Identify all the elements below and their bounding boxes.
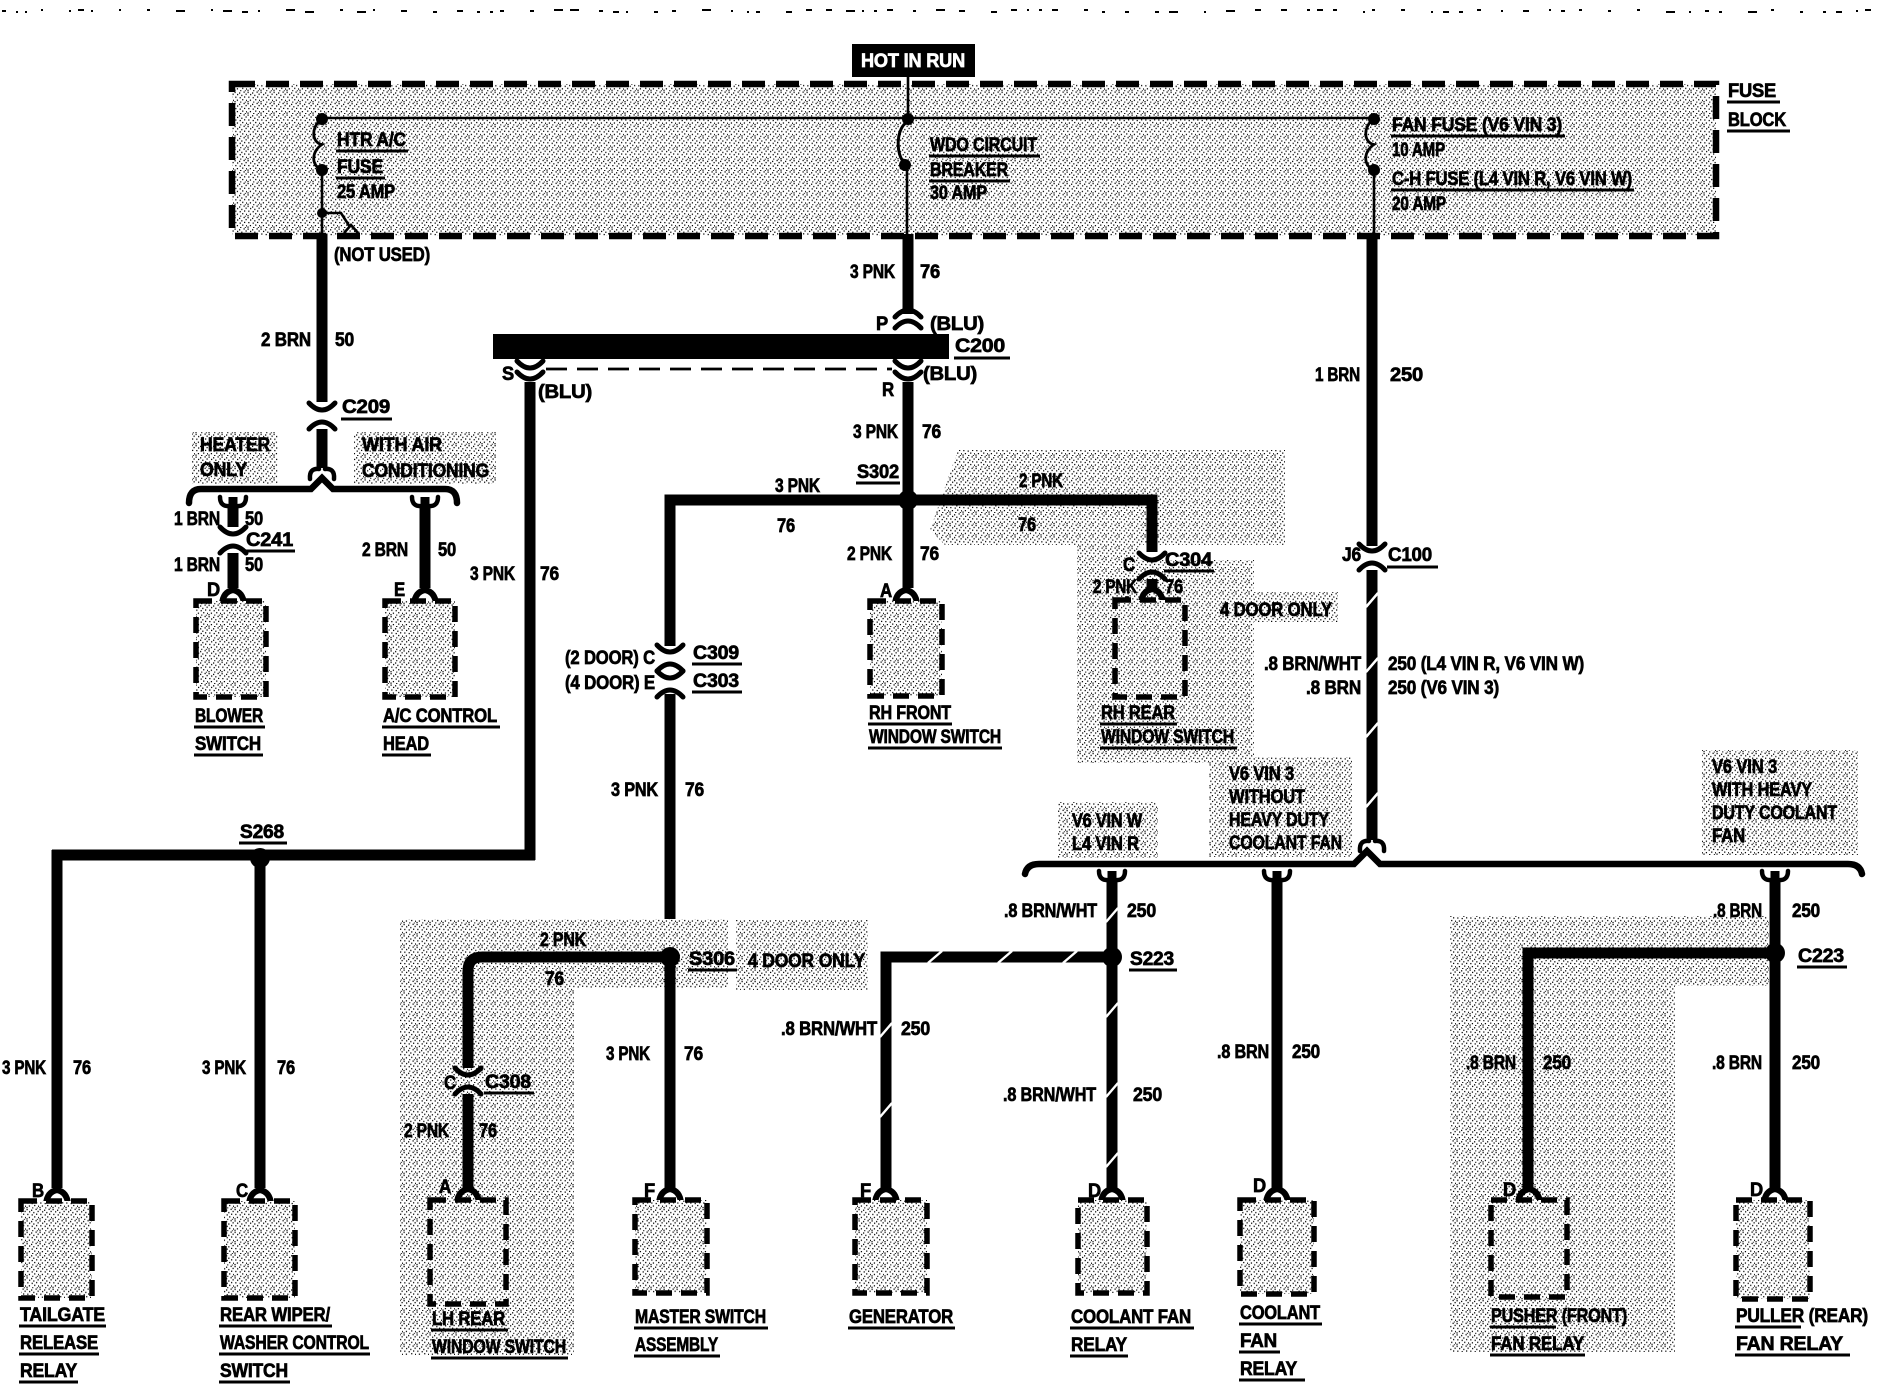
- svg-text:2 BRN: 2 BRN: [362, 540, 408, 561]
- svg-text:LH REAR: LH REAR: [432, 1309, 505, 1330]
- svg-text:PULLER (REAR): PULLER (REAR): [1736, 1306, 1868, 1327]
- svg-text:50: 50: [335, 330, 354, 351]
- svg-text:V6 VIN 3: V6 VIN 3: [1712, 757, 1777, 778]
- svg-text:D: D: [1253, 1176, 1266, 1197]
- svg-text:76: 76: [920, 544, 939, 565]
- svg-text:250: 250: [1292, 1042, 1320, 1063]
- svg-text:.8 BRN/WHT: .8 BRN/WHT: [1003, 1085, 1097, 1106]
- svg-text:C209: C209: [342, 397, 390, 418]
- svg-text:3 PNK: 3 PNK: [853, 422, 898, 443]
- svg-text:.8 BRN/WHT: .8 BRN/WHT: [781, 1019, 878, 1040]
- svg-text:3 PNK: 3 PNK: [775, 476, 820, 497]
- svg-text:(BLU): (BLU): [930, 314, 984, 335]
- svg-text:76: 76: [1165, 577, 1183, 598]
- svg-text:.8 BRN: .8 BRN: [1217, 1042, 1269, 1063]
- svg-text:RH FRONT: RH FRONT: [869, 703, 951, 724]
- svg-text:HOT IN RUN: HOT IN RUN: [861, 51, 965, 72]
- svg-text:S302: S302: [857, 462, 899, 483]
- svg-text:25 AMP: 25 AMP: [337, 182, 395, 203]
- svg-text:30 AMP: 30 AMP: [930, 183, 987, 204]
- svg-text:(NOT USED): (NOT USED): [334, 245, 430, 266]
- svg-text:WASHER CONTROL: WASHER CONTROL: [220, 1333, 369, 1354]
- svg-text:3 PNK: 3 PNK: [611, 780, 658, 801]
- svg-text:J6: J6: [1342, 545, 1361, 566]
- svg-text:3 PNK: 3 PNK: [850, 262, 895, 283]
- svg-text:BREAKER: BREAKER: [930, 160, 1008, 181]
- svg-text:(BLU): (BLU): [538, 382, 592, 403]
- svg-text:.8 BRN/WHT: .8 BRN/WHT: [1004, 901, 1098, 922]
- svg-text:WINDOW SWITCH: WINDOW SWITCH: [869, 727, 1001, 748]
- svg-text:2 PNK: 2 PNK: [1019, 471, 1063, 492]
- svg-text:CONDITIONING: CONDITIONING: [362, 461, 489, 482]
- svg-text:ONLY: ONLY: [200, 460, 247, 481]
- svg-text:2 PNK: 2 PNK: [540, 930, 586, 951]
- svg-text:76: 76: [777, 516, 795, 537]
- svg-text:.8 BRN: .8 BRN: [1466, 1053, 1516, 1074]
- svg-text:E: E: [394, 580, 405, 601]
- svg-text:FAN: FAN: [1712, 826, 1745, 847]
- svg-text:250: 250: [1543, 1053, 1571, 1074]
- svg-text:250: 250: [1133, 1085, 1162, 1106]
- svg-text:V6 VIN W: V6 VIN W: [1072, 811, 1142, 832]
- svg-text:76: 76: [540, 564, 559, 585]
- svg-text:RH REAR: RH REAR: [1101, 703, 1175, 724]
- svg-text:S: S: [502, 364, 514, 385]
- svg-text:1 BRN: 1 BRN: [1315, 365, 1360, 386]
- svg-text:GENERATOR: GENERATOR: [849, 1307, 953, 1328]
- svg-text:A/C CONTROL: A/C CONTROL: [383, 706, 498, 727]
- svg-text:.8 BRN: .8 BRN: [1712, 1053, 1762, 1074]
- svg-text:76: 76: [73, 1058, 91, 1079]
- svg-text:RELAY: RELAY: [1240, 1359, 1297, 1380]
- svg-text:WITH AIR: WITH AIR: [362, 435, 442, 456]
- svg-text:R: R: [882, 380, 894, 401]
- svg-text:P: P: [876, 314, 888, 335]
- svg-text:250: 250: [1390, 365, 1423, 386]
- svg-text:C-H FUSE (L4 VIN R, V6 VIN W): C-H FUSE (L4 VIN R, V6 VIN W): [1392, 169, 1632, 190]
- svg-text:1 BRN: 1 BRN: [174, 555, 220, 576]
- svg-text:250 (L4 VIN R, V6 VIN W): 250 (L4 VIN R, V6 VIN W): [1388, 654, 1584, 675]
- svg-text:S223: S223: [1130, 949, 1174, 970]
- svg-text:DUTY COOLANT: DUTY COOLANT: [1712, 803, 1837, 824]
- svg-text:HEATER: HEATER: [200, 435, 270, 456]
- svg-text:L4 VIN R: L4 VIN R: [1072, 834, 1139, 855]
- svg-text:4 DOOR ONLY: 4 DOOR ONLY: [748, 951, 865, 972]
- svg-text:3 PNK: 3 PNK: [2, 1058, 46, 1079]
- svg-text:76: 76: [1018, 515, 1036, 536]
- svg-text:2 BRN: 2 BRN: [261, 330, 311, 351]
- svg-text:COOLANT FAN: COOLANT FAN: [1229, 833, 1342, 854]
- svg-text:3 PNK: 3 PNK: [606, 1044, 650, 1065]
- svg-text:SWITCH: SWITCH: [220, 1361, 288, 1382]
- svg-text:D: D: [207, 580, 220, 601]
- svg-text:250: 250: [1792, 901, 1820, 922]
- svg-text:C303: C303: [693, 671, 739, 692]
- svg-text:250: 250: [1792, 1053, 1820, 1074]
- svg-text:C100: C100: [1388, 545, 1432, 566]
- svg-text:COOLANT FAN: COOLANT FAN: [1071, 1307, 1191, 1328]
- svg-text:76: 76: [684, 1044, 703, 1065]
- svg-text:4 DOOR ONLY: 4 DOOR ONLY: [1220, 600, 1332, 621]
- svg-text:TAILGATE: TAILGATE: [20, 1305, 105, 1326]
- svg-text:HTR A/C: HTR A/C: [337, 130, 406, 151]
- svg-text:76: 76: [277, 1058, 295, 1079]
- svg-text:3 PNK: 3 PNK: [470, 564, 515, 585]
- svg-text:76: 76: [545, 969, 564, 990]
- svg-text:V6 VIN 3: V6 VIN 3: [1229, 764, 1294, 785]
- svg-text:WITHOUT: WITHOUT: [1229, 787, 1306, 808]
- svg-text:FAN RELAY: FAN RELAY: [1491, 1334, 1584, 1355]
- svg-text:10 AMP: 10 AMP: [1392, 140, 1445, 161]
- svg-text:SWITCH: SWITCH: [195, 734, 261, 755]
- svg-text:C241: C241: [246, 530, 294, 551]
- svg-text:.8 BRN: .8 BRN: [1713, 901, 1762, 922]
- svg-text:2 PNK: 2 PNK: [404, 1121, 449, 1142]
- svg-text:1 BRN: 1 BRN: [174, 509, 220, 530]
- svg-text:(BLU): (BLU): [923, 364, 977, 385]
- svg-text:RELAY: RELAY: [20, 1361, 77, 1382]
- svg-text:20 AMP: 20 AMP: [1392, 194, 1446, 215]
- svg-text:C200: C200: [955, 336, 1005, 357]
- svg-text:2 PNK: 2 PNK: [847, 544, 892, 565]
- svg-text:FAN RELAY: FAN RELAY: [1736, 1334, 1844, 1355]
- svg-text:50: 50: [438, 540, 456, 561]
- svg-text:WINDOW SWITCH: WINDOW SWITCH: [1101, 727, 1234, 748]
- svg-text:COOLANT: COOLANT: [1240, 1303, 1321, 1324]
- svg-text:(4 DOOR) E: (4 DOOR) E: [565, 673, 655, 694]
- svg-text:FAN FUSE (V6 VIN 3): FAN FUSE (V6 VIN 3): [1392, 115, 1562, 136]
- svg-text:HEAD: HEAD: [383, 734, 429, 755]
- svg-text:BLOCK: BLOCK: [1728, 110, 1786, 131]
- svg-text:PUSHER (FRONT): PUSHER (FRONT): [1491, 1306, 1627, 1327]
- svg-text:MASTER SWITCH: MASTER SWITCH: [635, 1307, 766, 1328]
- svg-text:FAN: FAN: [1240, 1331, 1277, 1352]
- svg-text:250: 250: [901, 1019, 930, 1040]
- svg-text:S268: S268: [240, 822, 284, 843]
- svg-text:REAR WIPER/: REAR WIPER/: [220, 1305, 331, 1326]
- svg-text:.8 BRN/WHT: .8 BRN/WHT: [1264, 654, 1362, 675]
- svg-text:FUSE: FUSE: [1728, 81, 1776, 102]
- svg-text:RELAY: RELAY: [1071, 1335, 1127, 1356]
- svg-text:FUSE: FUSE: [337, 157, 383, 178]
- svg-text:WITH HEAVY: WITH HEAVY: [1712, 780, 1812, 801]
- svg-text:WINDOW SWITCH: WINDOW SWITCH: [432, 1337, 566, 1358]
- svg-text:C309: C309: [693, 643, 739, 664]
- svg-text:3 PNK: 3 PNK: [202, 1058, 246, 1079]
- svg-text:(2 DOOR) C: (2 DOOR) C: [565, 648, 655, 669]
- svg-text:C: C: [444, 1073, 456, 1094]
- svg-text:C308: C308: [485, 1072, 531, 1093]
- svg-text:.8 BRN: .8 BRN: [1306, 678, 1361, 699]
- svg-text:C304: C304: [1165, 550, 1213, 571]
- svg-text:76: 76: [479, 1121, 497, 1142]
- svg-text:A: A: [439, 1177, 451, 1198]
- svg-text:76: 76: [922, 422, 941, 443]
- svg-text:C223: C223: [1798, 946, 1844, 967]
- svg-text:S306: S306: [689, 949, 735, 970]
- svg-text:250: 250: [1127, 901, 1156, 922]
- svg-text:ASSEMBLY: ASSEMBLY: [635, 1335, 718, 1356]
- svg-text:BLOWER: BLOWER: [195, 706, 263, 727]
- svg-text:76: 76: [920, 262, 940, 283]
- svg-text:76: 76: [685, 780, 704, 801]
- svg-text:C: C: [1123, 555, 1135, 576]
- svg-text:HEAVY DUTY: HEAVY DUTY: [1229, 810, 1329, 831]
- svg-text:WDO CIRCUIT: WDO CIRCUIT: [930, 135, 1038, 156]
- svg-text:RELEASE: RELEASE: [20, 1333, 98, 1354]
- svg-text:250 (V6 VIN 3): 250 (V6 VIN 3): [1388, 678, 1499, 699]
- svg-text:50: 50: [245, 555, 263, 576]
